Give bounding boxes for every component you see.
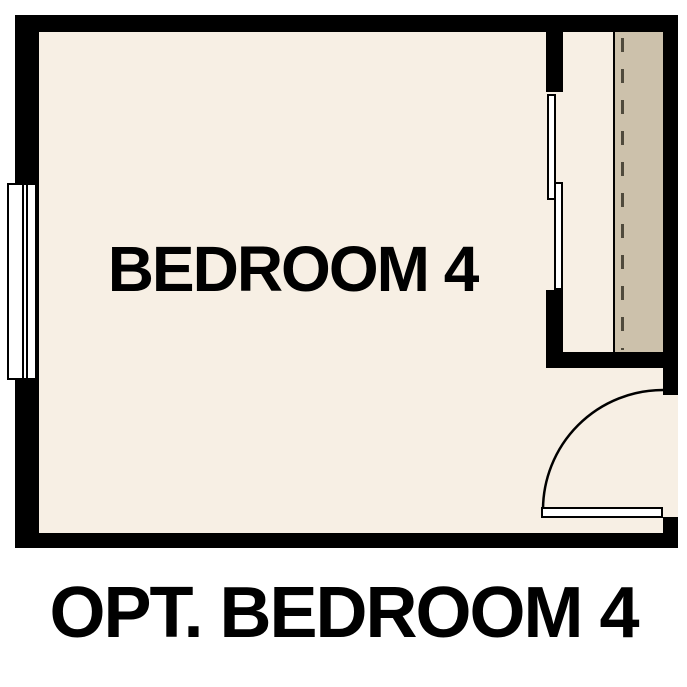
exterior-wall-right	[663, 15, 678, 395]
window	[7, 183, 37, 380]
plan-caption: OPT. BEDROOM 4	[0, 577, 687, 649]
room-label: BEDROOM 4	[39, 237, 546, 301]
window-pane-line	[22, 185, 24, 378]
door-leaf	[541, 507, 663, 518]
closet-bottom-wall	[546, 352, 678, 368]
exterior-wall-top	[15, 15, 678, 32]
closet-partition-upper	[546, 31, 563, 92]
window-pane-line	[26, 185, 28, 378]
closet-shelf	[613, 32, 663, 352]
closet-bypass-door-back	[554, 182, 563, 290]
door-jamb-block	[663, 517, 678, 548]
exterior-wall-bottom	[15, 533, 678, 548]
door-opening-floor	[663, 395, 678, 517]
